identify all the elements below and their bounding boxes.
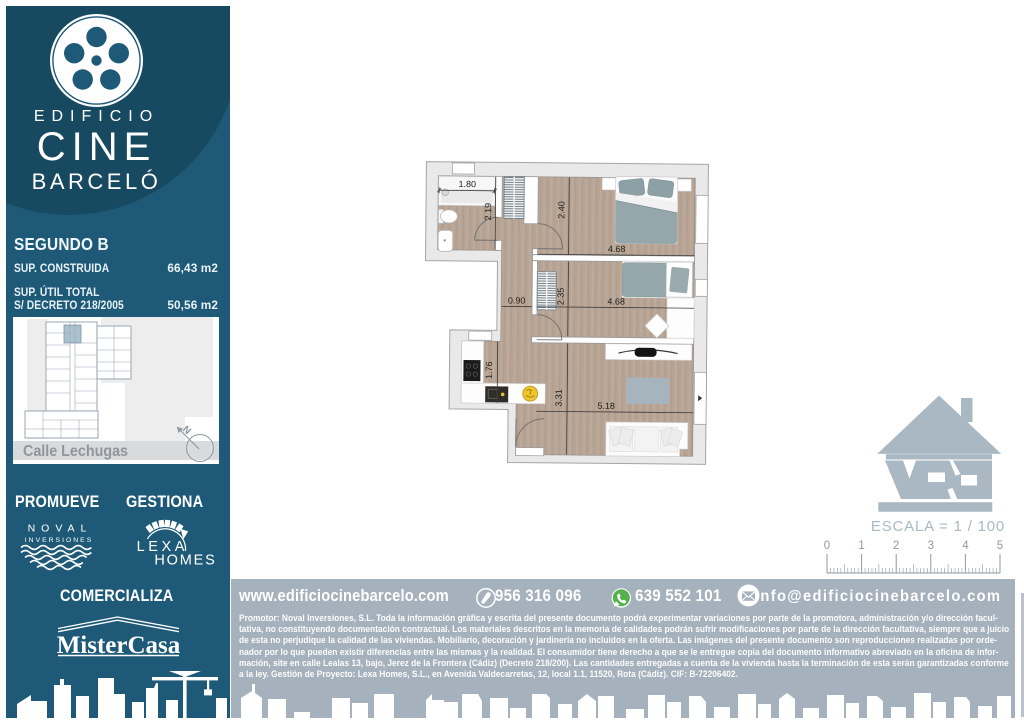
svg-text:0: 0 xyxy=(824,540,830,552)
svg-text:1: 1 xyxy=(858,540,864,552)
svg-text:4.68: 4.68 xyxy=(607,296,625,306)
svg-text:2.19: 2.19 xyxy=(483,203,493,221)
svg-text:4: 4 xyxy=(962,540,969,552)
svg-text:1.76: 1.76 xyxy=(484,361,494,379)
svg-text:ESCALA = 1 / 100: ESCALA = 1 / 100 xyxy=(871,518,1005,535)
svg-text:1.80: 1.80 xyxy=(458,179,476,189)
svg-text:5.18: 5.18 xyxy=(597,401,615,411)
svg-text:3.31: 3.31 xyxy=(554,389,564,407)
svg-text:4.68: 4.68 xyxy=(608,244,626,254)
svg-text:2: 2 xyxy=(893,540,899,552)
svg-text:2.40: 2.40 xyxy=(556,201,566,219)
svg-text:5: 5 xyxy=(997,540,1003,552)
svg-text:3: 3 xyxy=(928,540,934,552)
svg-text:2.35: 2.35 xyxy=(556,288,566,306)
svg-text:0.90: 0.90 xyxy=(508,295,526,305)
